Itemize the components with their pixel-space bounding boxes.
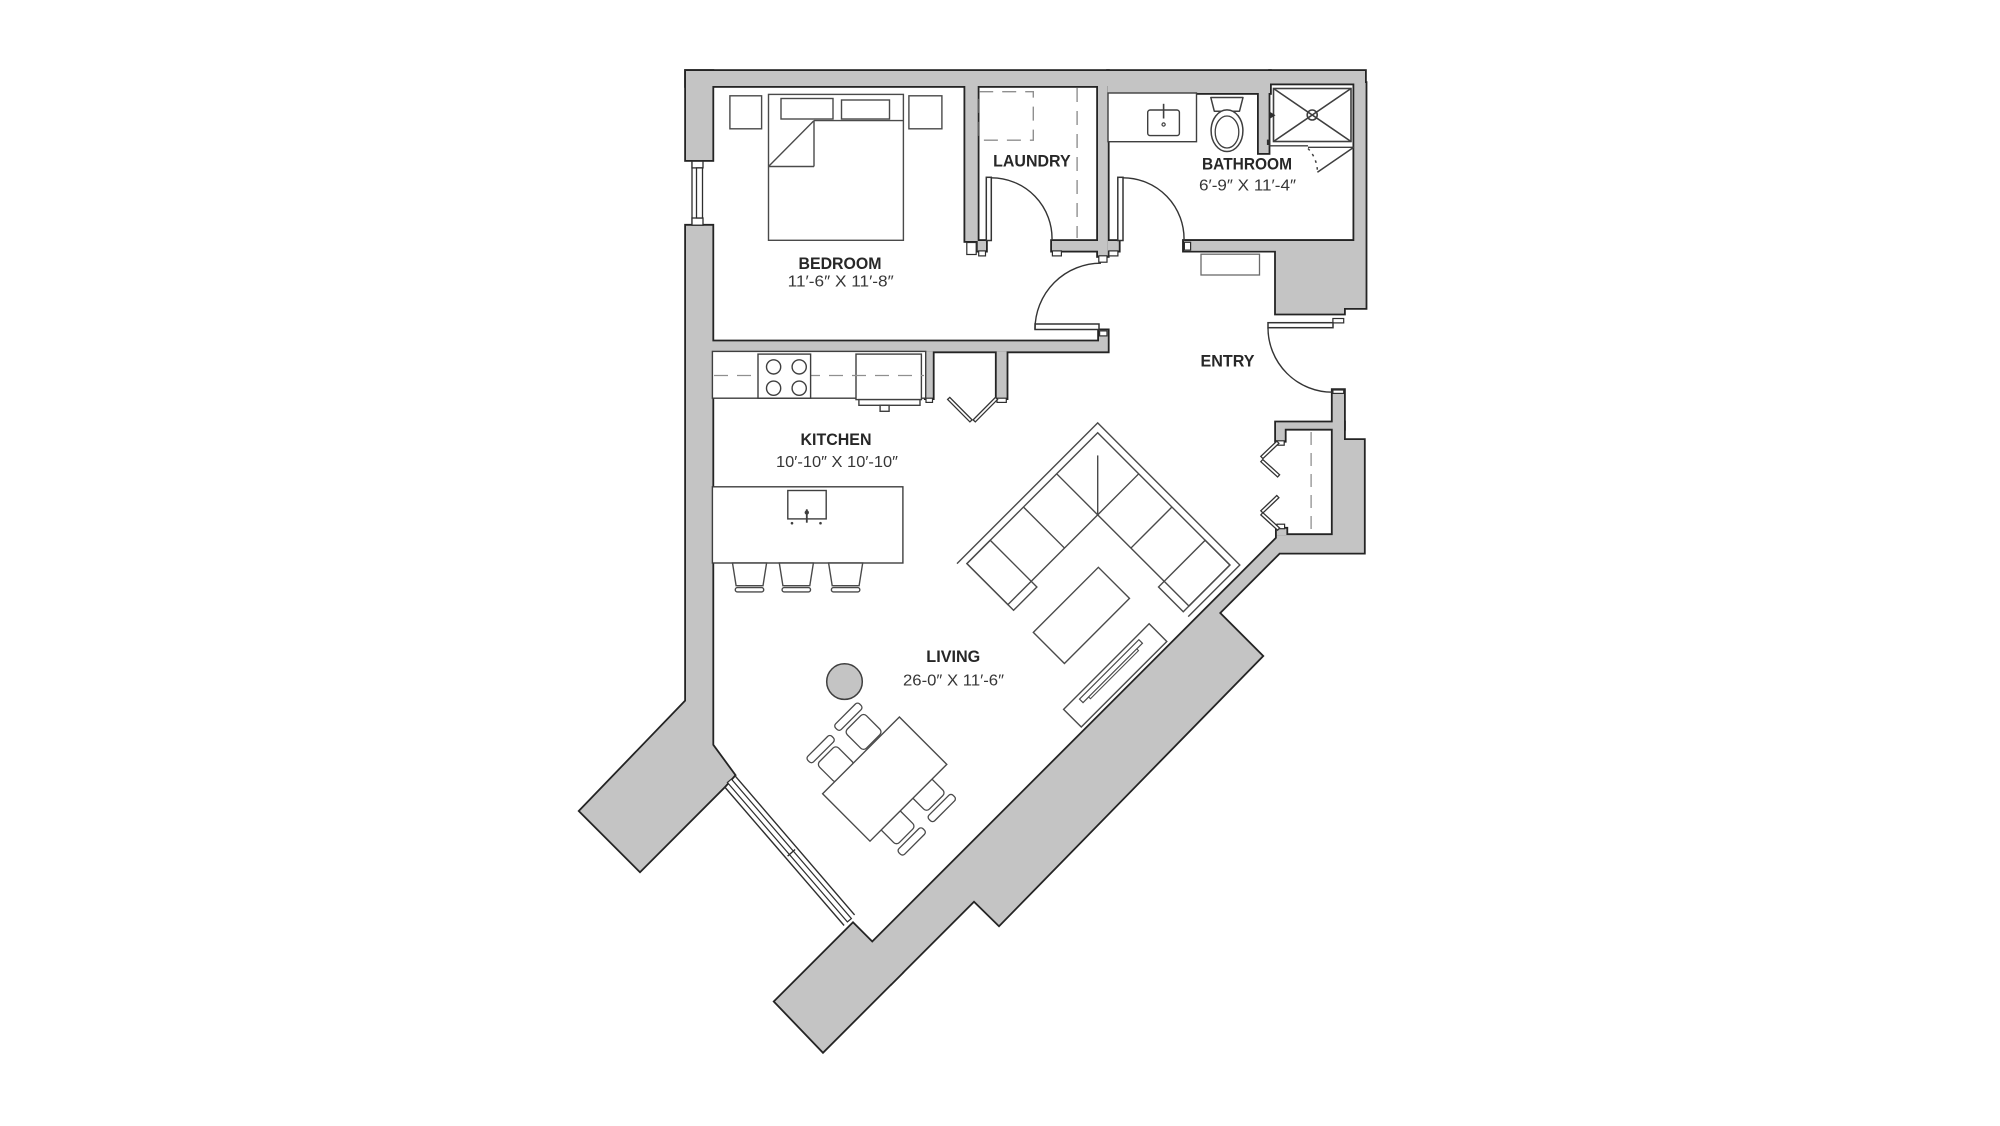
svg-text:LAUNDRY: LAUNDRY [993,152,1071,170]
svg-text:10′-10″ X 10′-10″: 10′-10″ X 10′-10″ [776,454,898,471]
svg-text:26-0″ X 11′-6″: 26-0″ X 11′-6″ [903,673,1004,690]
svg-text:BATHROOM: BATHROOM [1202,156,1292,174]
svg-text:11′-6″ X 11′-8″: 11′-6″ X 11′-8″ [788,274,894,291]
svg-text:BEDROOM: BEDROOM [799,255,882,273]
svg-text:LIVING: LIVING [926,648,980,666]
svg-text:6′-9″ X 11′-4″: 6′-9″ X 11′-4″ [1199,178,1296,195]
svg-text:KITCHEN: KITCHEN [801,431,872,449]
svg-text:ENTRY: ENTRY [1201,353,1255,371]
